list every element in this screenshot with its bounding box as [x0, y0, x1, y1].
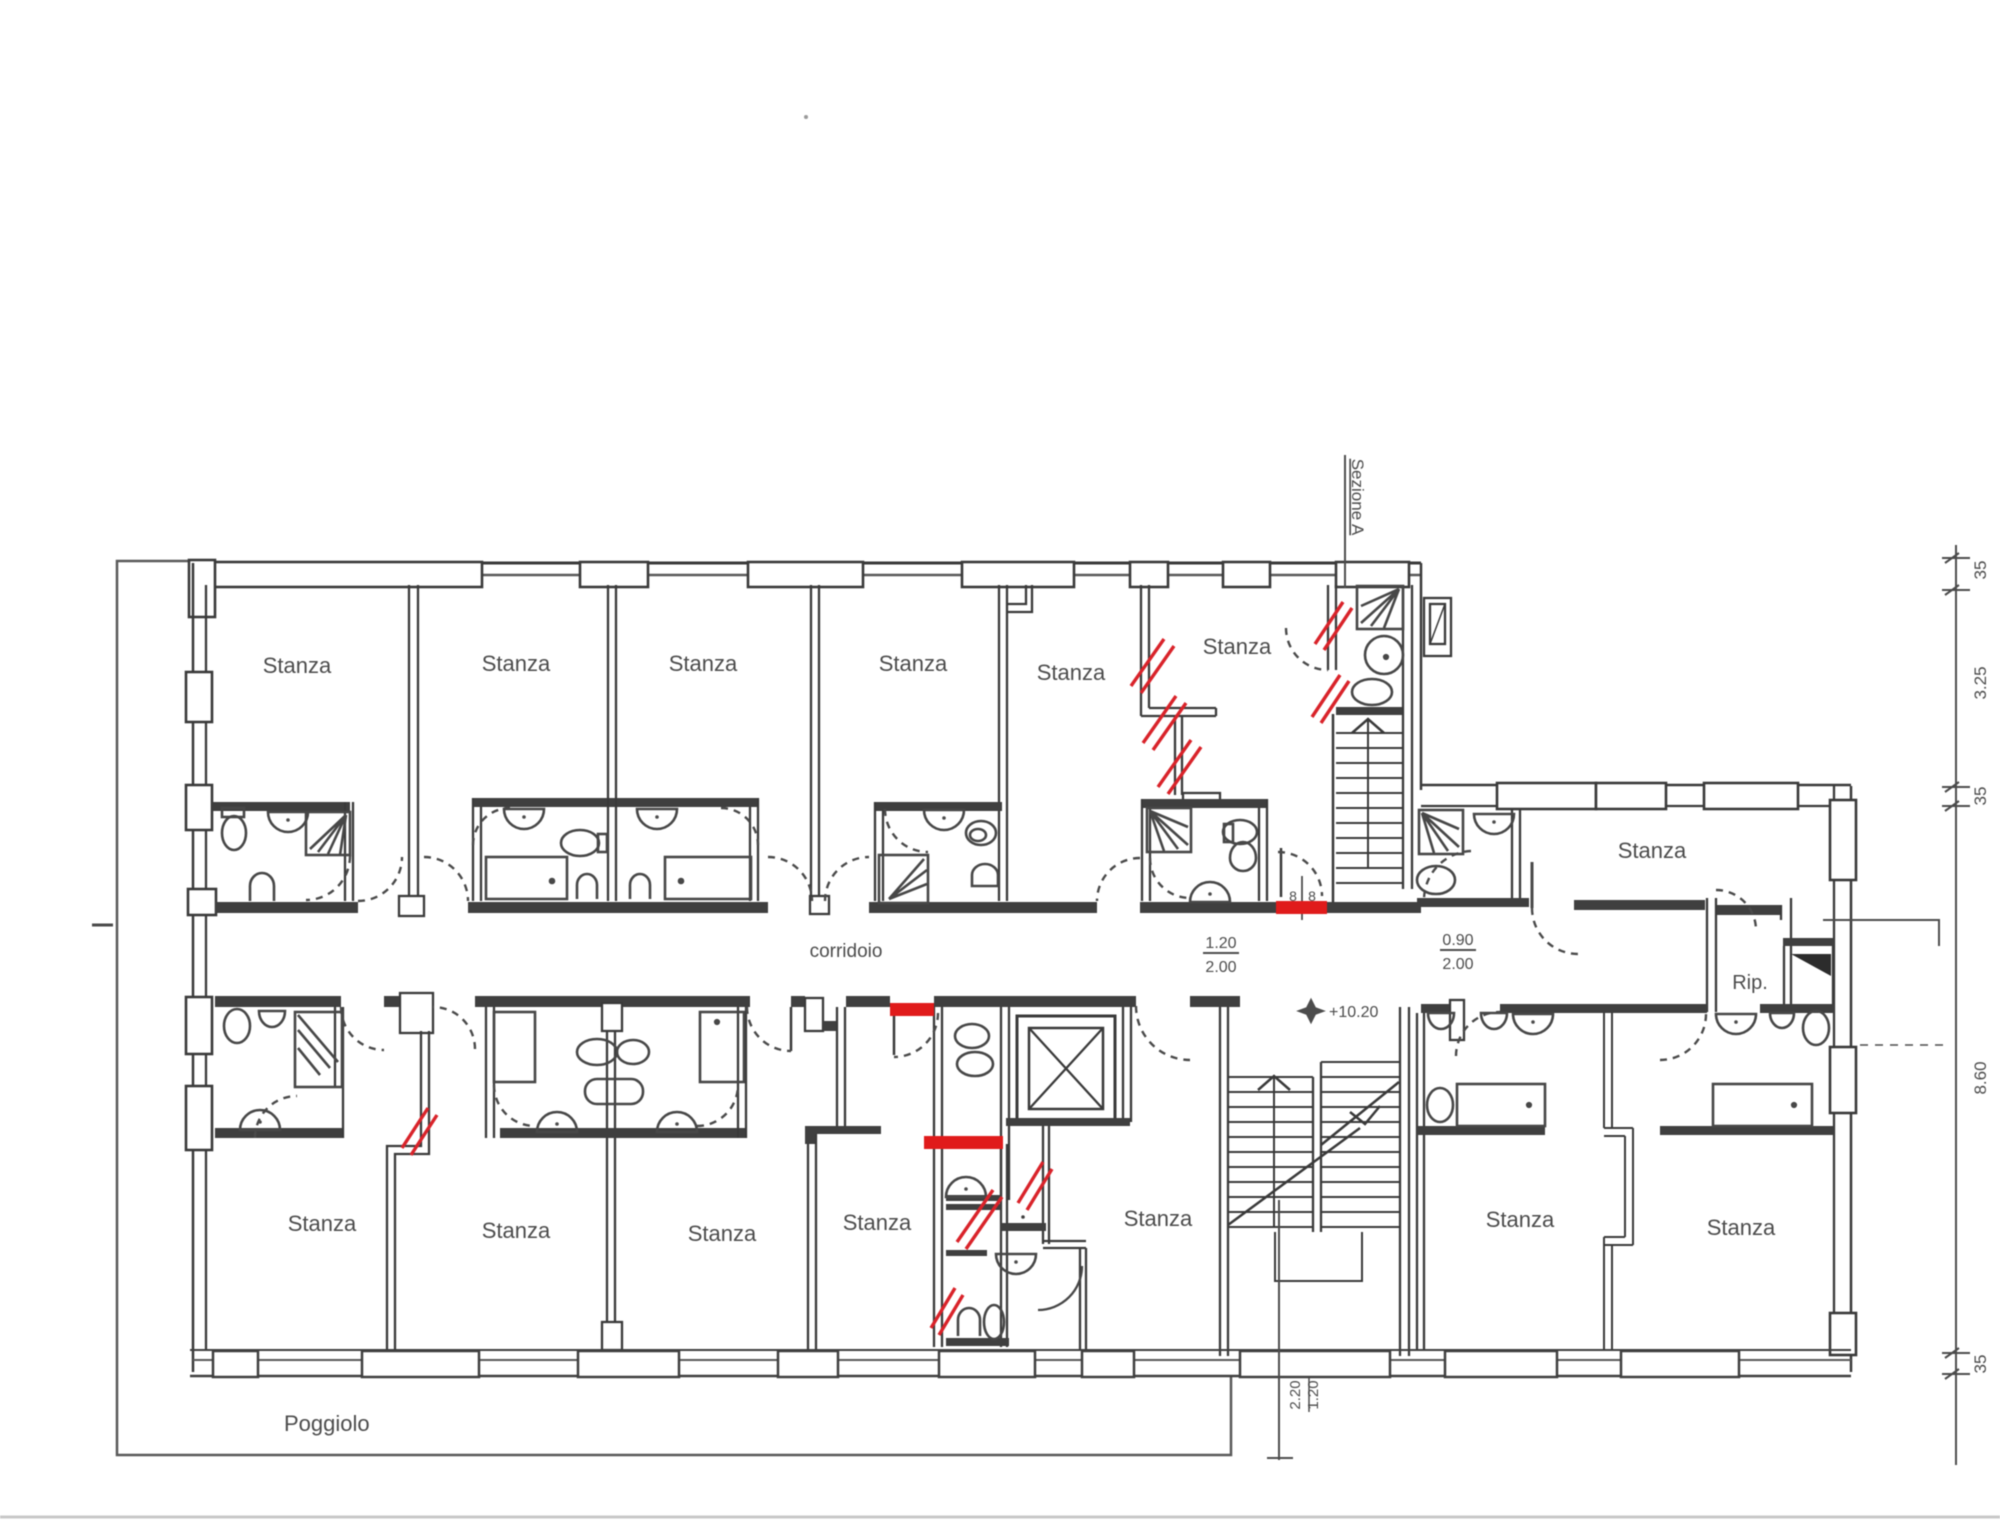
svg-text:Stanza: Stanza: [263, 653, 332, 678]
svg-text:0.90: 0.90: [1442, 932, 1473, 949]
svg-text:2.20: 2.20: [1287, 1380, 1304, 1409]
svg-text:Stanza: Stanza: [482, 1218, 551, 1243]
svg-text:Stanza: Stanza: [669, 651, 738, 676]
svg-text:Stanza: Stanza: [1618, 838, 1687, 863]
svg-text:Sezione A: Sezione A: [1348, 459, 1367, 536]
svg-text:1.20: 1.20: [1305, 1380, 1322, 1409]
svg-text:Stanza: Stanza: [688, 1221, 757, 1246]
svg-text:Stanza: Stanza: [1707, 1215, 1776, 1240]
svg-text:Stanza: Stanza: [1203, 634, 1272, 659]
svg-text:3.25: 3.25: [1971, 666, 1990, 699]
svg-text:35: 35: [1971, 1355, 1990, 1374]
svg-text:Stanza: Stanza: [1124, 1206, 1193, 1231]
svg-text:Poggiolo: Poggiolo: [284, 1411, 370, 1436]
svg-text:2.00: 2.00: [1442, 956, 1473, 973]
svg-text:corridoio: corridoio: [810, 941, 883, 962]
svg-text:35: 35: [1971, 561, 1990, 580]
svg-text:2.00: 2.00: [1205, 959, 1236, 976]
svg-text:35: 35: [1971, 787, 1990, 806]
svg-text:Stanza: Stanza: [1037, 660, 1106, 685]
svg-text:Stanza: Stanza: [482, 651, 551, 676]
svg-text:Stanza: Stanza: [288, 1211, 357, 1236]
svg-text:Stanza: Stanza: [1486, 1207, 1555, 1232]
svg-text:8: 8: [1308, 888, 1316, 904]
svg-text:Rip.: Rip.: [1732, 972, 1768, 994]
svg-text:Stanza: Stanza: [879, 651, 948, 676]
svg-text:1.20: 1.20: [1205, 935, 1236, 952]
svg-text:8: 8: [1289, 888, 1297, 904]
svg-text:8.60: 8.60: [1971, 1061, 1990, 1094]
svg-text:+10.20: +10.20: [1329, 1004, 1378, 1021]
svg-text:Stanza: Stanza: [843, 1210, 912, 1235]
